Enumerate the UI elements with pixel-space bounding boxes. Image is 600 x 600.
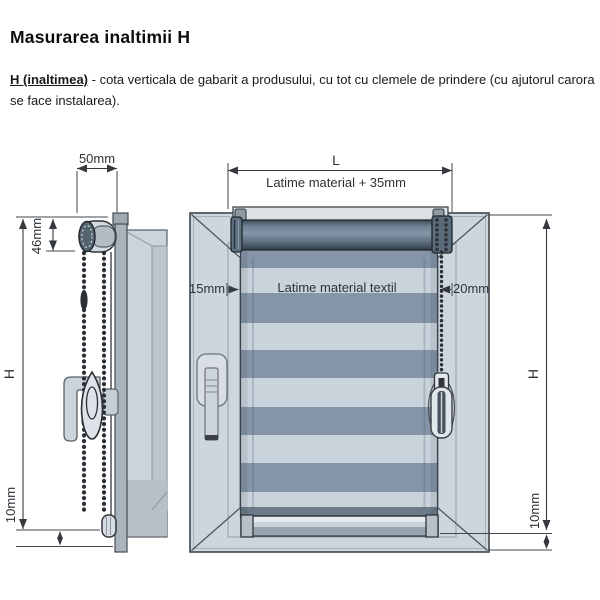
side-mount-bracket — [113, 213, 128, 552]
total-width-note: Latime material + 35mm — [266, 175, 406, 190]
side-view: 50mm 46mm H 10mm — [1, 151, 167, 552]
bottom-gap-label: 10mm — [527, 493, 542, 529]
height-label: H — [525, 369, 541, 379]
tube-end-cap-left — [231, 217, 242, 252]
bottom-gap-label: 10mm — [3, 487, 18, 523]
depth-label: 50mm — [79, 151, 115, 166]
side-window-frame — [126, 230, 167, 537]
measurement-diagram: 50mm 46mm H 10mm — [0, 130, 600, 600]
description: H (inaltimea) - cota verticala de gabari… — [10, 69, 598, 112]
side-dim-bottom-10mm: 10mm — [3, 487, 113, 547]
right-gap-label: 20mm — [453, 281, 489, 296]
mechanism-height-label: 46mm — [29, 218, 44, 254]
chain-wheel-end-cap — [432, 216, 452, 253]
side-dim-depth-50mm: 50mm — [77, 151, 117, 213]
side-roller-mechanism — [79, 221, 116, 252]
front-bottom-bar — [241, 515, 438, 537]
front-dim-total-width-L: L Latime material + 35mm — [228, 152, 452, 212]
page: Masurarea inaltimii H H (inaltimea) - co… — [0, 0, 600, 600]
description-text: - cota verticala de gabarit a produsului… — [10, 72, 595, 108]
side-dim-mechanism-46mm: 46mm — [29, 218, 75, 254]
fabric-width-label: Latime material textil — [277, 280, 396, 295]
description-term: H (inaltimea) — [10, 72, 88, 87]
roller-tube — [237, 220, 444, 250]
left-gap-label: 15mm — [189, 281, 225, 296]
front-dim-height-H: H — [489, 215, 552, 530]
front-chain-weight — [431, 387, 452, 438]
side-bottom-bar — [102, 515, 116, 537]
page-title: Masurarea inaltimii H — [10, 27, 190, 48]
total-width-label: L — [332, 152, 340, 168]
front-view: L Latime material + 35mm 15mm Latime mat… — [189, 152, 552, 552]
chain-connector-bead — [80, 290, 87, 310]
front-cassette-and-tube — [231, 207, 452, 253]
height-label: H — [1, 369, 17, 379]
